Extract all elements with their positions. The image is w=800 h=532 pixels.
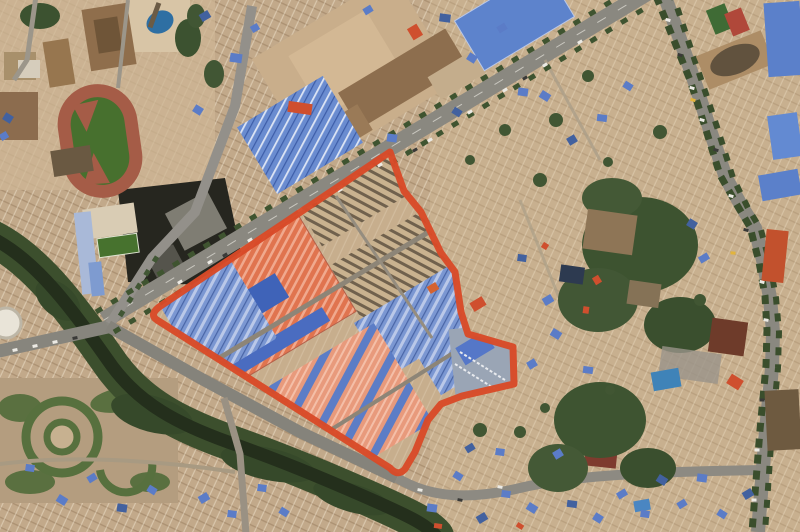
blue-roof	[640, 510, 650, 518]
tree	[465, 155, 475, 165]
blue-roof	[116, 503, 127, 512]
vehicle	[752, 499, 757, 502]
dark-building	[764, 389, 800, 451]
compound-building	[626, 280, 661, 308]
blue-roof	[229, 53, 242, 64]
tree	[533, 173, 547, 187]
tree	[514, 426, 526, 438]
round-white-building	[0, 308, 21, 338]
compound-building	[582, 209, 637, 256]
tree	[540, 403, 550, 413]
blue-roof	[517, 87, 528, 96]
vehicle	[760, 399, 765, 402]
blue-roof	[567, 500, 578, 508]
solar-panel	[559, 264, 585, 284]
blue-roof	[501, 490, 511, 498]
vehicle	[730, 251, 735, 254]
blue-roof	[517, 254, 527, 262]
blue-roof	[257, 484, 267, 492]
trees	[204, 60, 224, 88]
tree	[582, 70, 594, 82]
tree	[549, 113, 563, 127]
satellite-map-image	[0, 0, 800, 532]
map-layers	[0, 0, 800, 532]
tree	[605, 385, 615, 395]
blue-roof	[227, 510, 237, 518]
trees	[20, 3, 60, 29]
tree	[473, 423, 487, 437]
blue-roof	[426, 503, 437, 512]
map-canvas	[0, 0, 800, 532]
blue-roof	[439, 13, 451, 22]
tree	[653, 125, 667, 139]
tree	[499, 124, 511, 136]
blue-roof	[495, 448, 505, 456]
blue-roof	[386, 133, 397, 142]
big-blue-building	[763, 1, 800, 77]
blue-roof	[597, 114, 608, 122]
blue-roof	[696, 473, 707, 482]
vehicle	[755, 449, 760, 452]
dark-red-building	[708, 318, 748, 357]
blue-roof	[25, 464, 35, 472]
blue-roof	[583, 366, 594, 374]
tree	[694, 294, 706, 306]
red-roof	[583, 306, 590, 314]
park-hedge-center	[47, 422, 77, 452]
compound-trees	[620, 448, 676, 488]
tree	[603, 157, 613, 167]
